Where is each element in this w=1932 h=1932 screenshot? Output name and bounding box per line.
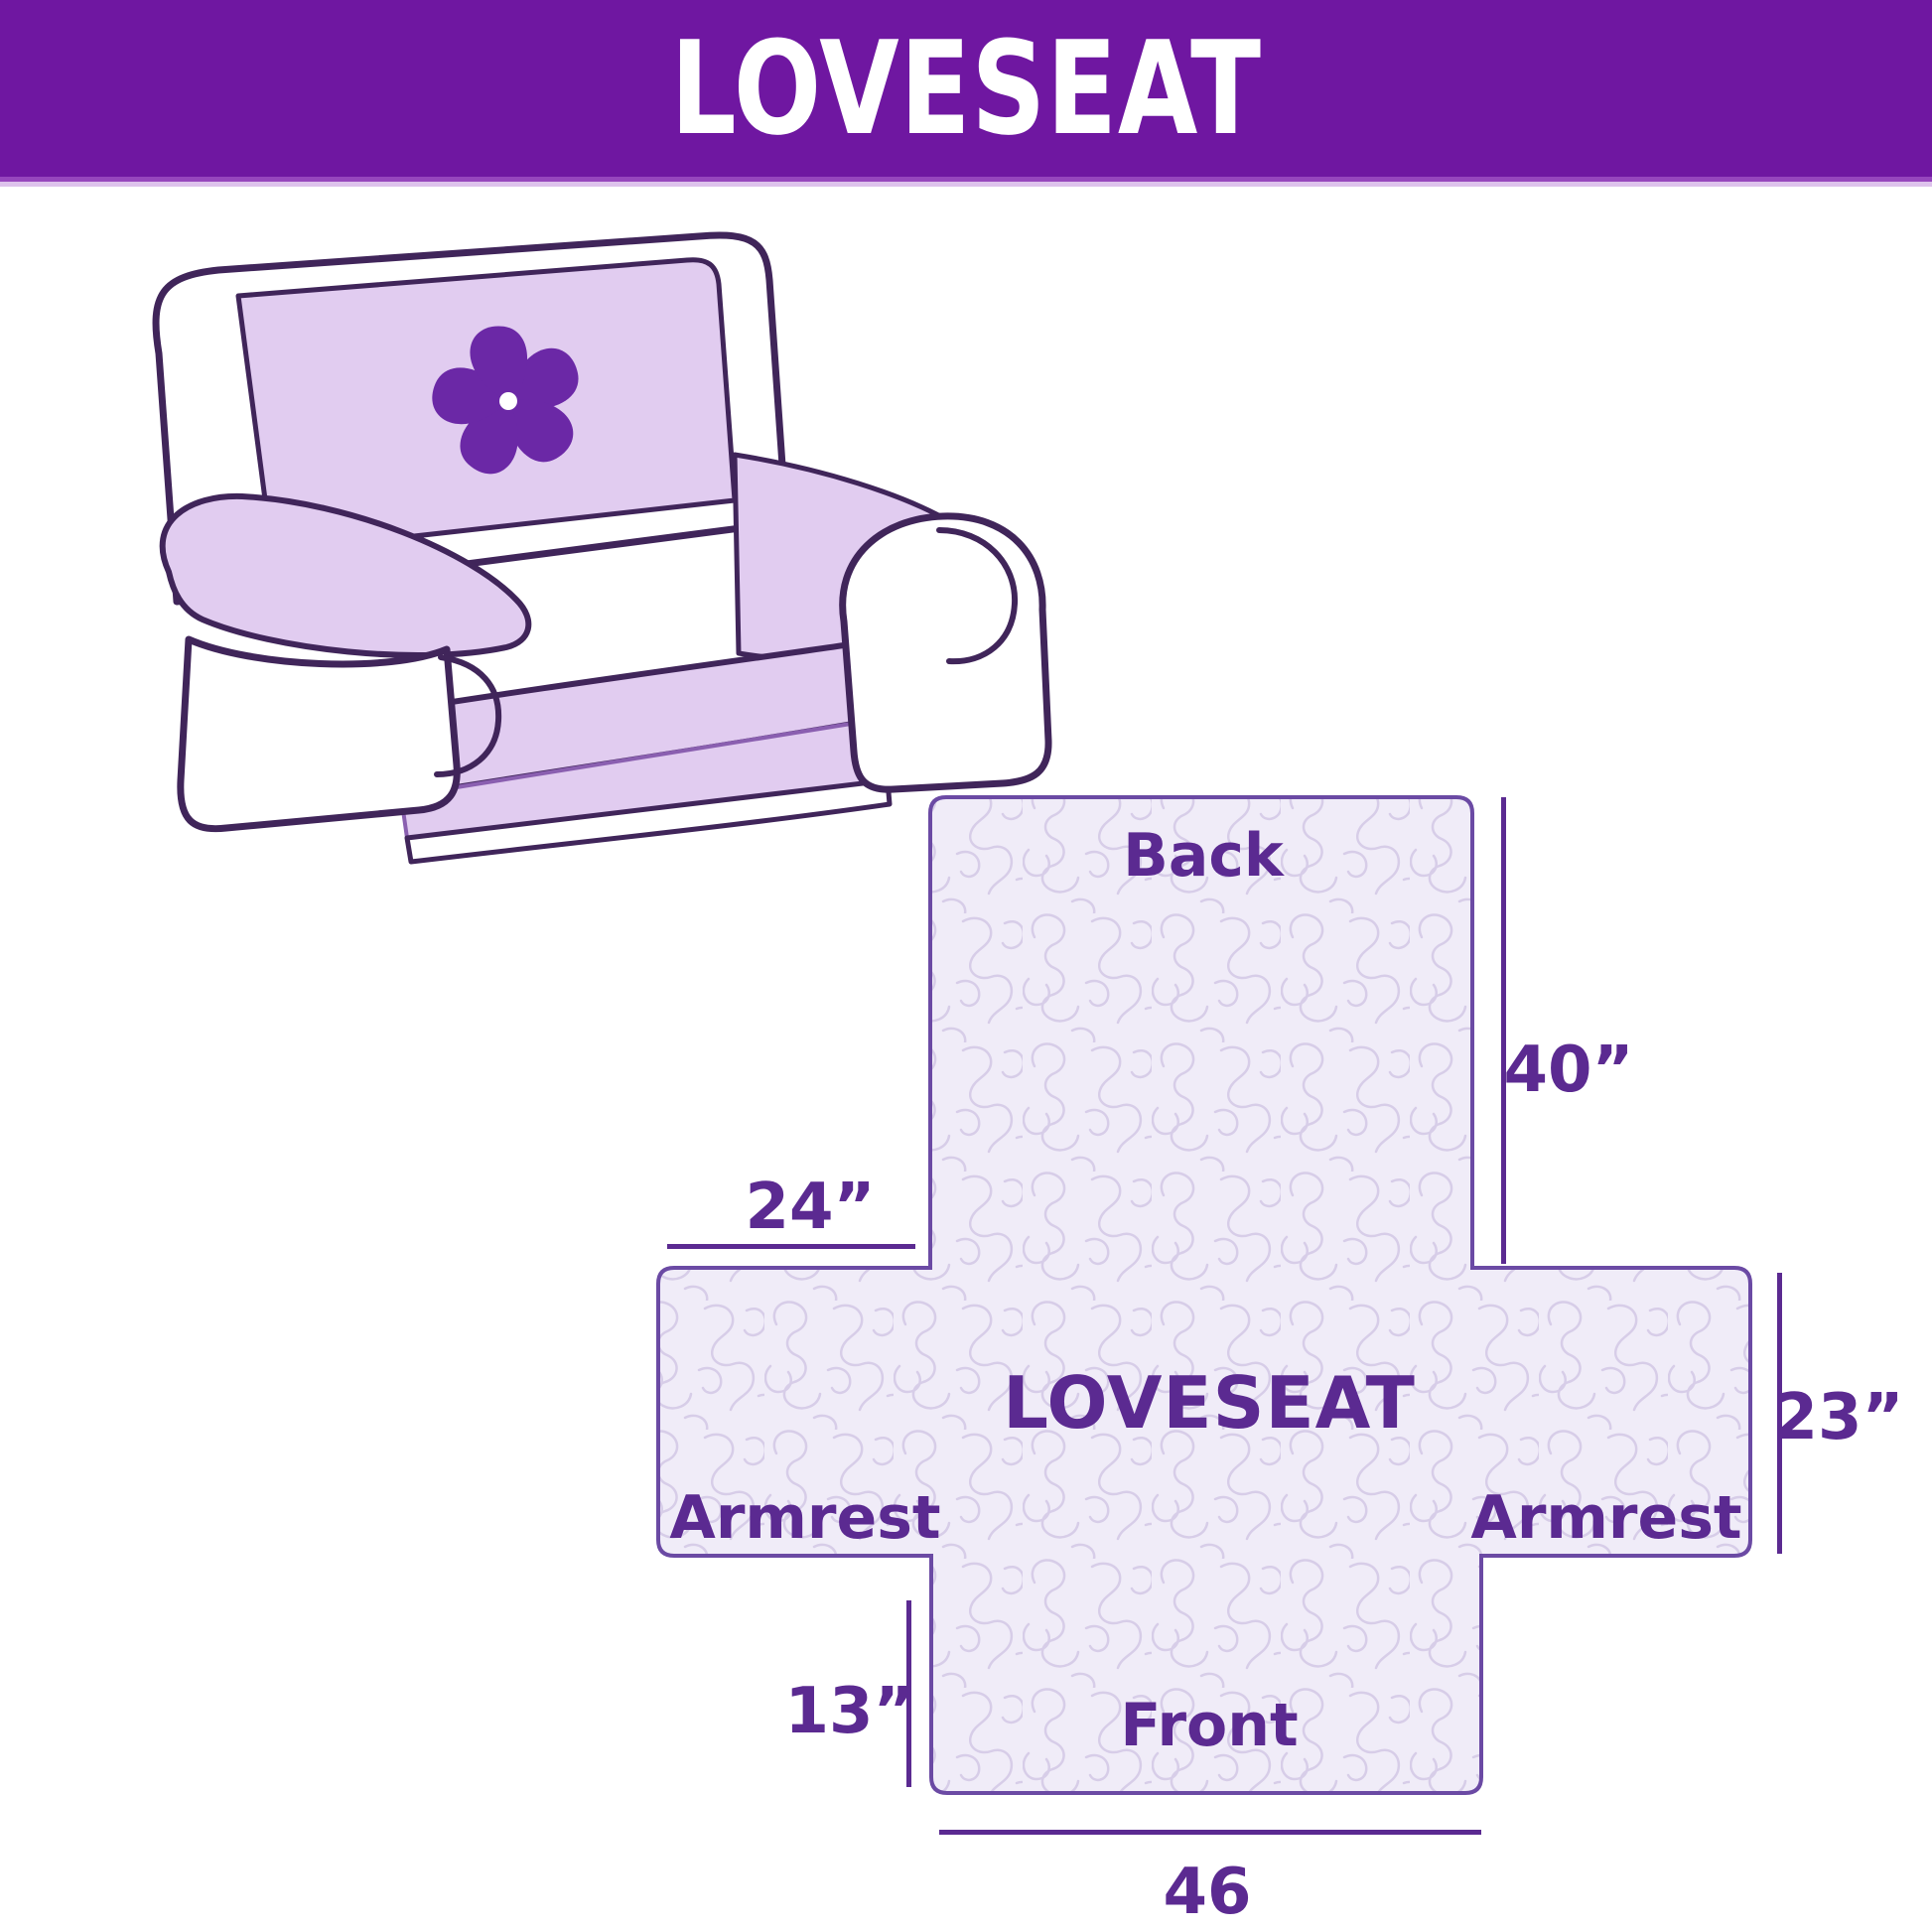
back-label: Back: [1123, 826, 1284, 886]
dim-armrest-height-label: 23”: [1773, 1386, 1903, 1449]
cover-cross-shape: [658, 797, 1750, 1793]
cover-cross-diagram: [635, 784, 1777, 1807]
sofa-right-arm: [843, 516, 1048, 789]
dim-line-armrest-width: [667, 1244, 915, 1249]
dim-line-front-width: [939, 1830, 1481, 1835]
dim-armrest-width-label: 24”: [745, 1175, 875, 1239]
header-banner: LOVESEAT: [0, 0, 1932, 177]
sofa-left-arm: [181, 639, 457, 829]
diagram-title: LOVESEAT: [1003, 1367, 1416, 1439]
front-label: Front: [1120, 1696, 1298, 1755]
dim-back-height-label: 40”: [1503, 1038, 1633, 1102]
dim-line-back-height: [1501, 797, 1506, 1264]
armrest-left-label: Armrest: [669, 1488, 940, 1548]
armrest-right-label: Armrest: [1470, 1488, 1741, 1548]
dim-front-width-label: 46: [1163, 1861, 1251, 1924]
header-stripe: [0, 182, 1932, 187]
dim-front-height-label: 13”: [784, 1680, 914, 1743]
sofa-illustration: [91, 224, 1064, 880]
page-title: LOVESEAT: [670, 24, 1261, 153]
loveseat-cover-infographic: LOVESEAT: [0, 0, 1932, 1932]
